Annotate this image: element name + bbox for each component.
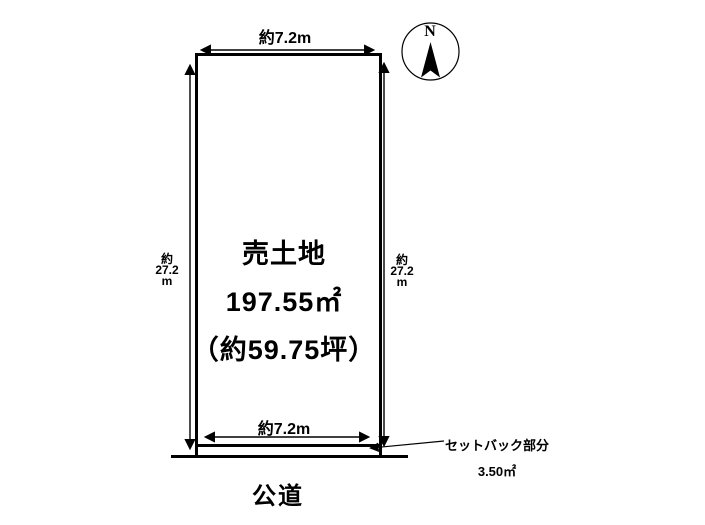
plot-area-sqm: 197.55㎡ (179, 290, 389, 314)
road-edge-line (171, 455, 408, 458)
compass-north-label: N (415, 23, 445, 41)
setback-note: セットバック部分 3.50㎡ (437, 426, 557, 491)
plot-area-tsubo: （約59.75坪） (179, 338, 389, 362)
setback-note-line2: 3.50㎡ (437, 465, 557, 478)
top-width-label: 約7.2m (230, 24, 340, 48)
setback-note-line1: セットバック部分 (437, 439, 557, 452)
setback-line (197, 444, 381, 447)
bottom-width-label: 約7.2m (229, 415, 339, 439)
plot-title: 売土地 (179, 242, 389, 266)
road-label: 公道 (228, 476, 328, 511)
compass-needle-icon (421, 42, 440, 78)
plot-area-block: 売土地 197.55㎡ （約59.75坪） (179, 218, 389, 386)
land-plot-diagram: N 約7.2m 約 27.2 m 約 27.2 m 売土地 197.55㎡ （約… (0, 0, 705, 525)
